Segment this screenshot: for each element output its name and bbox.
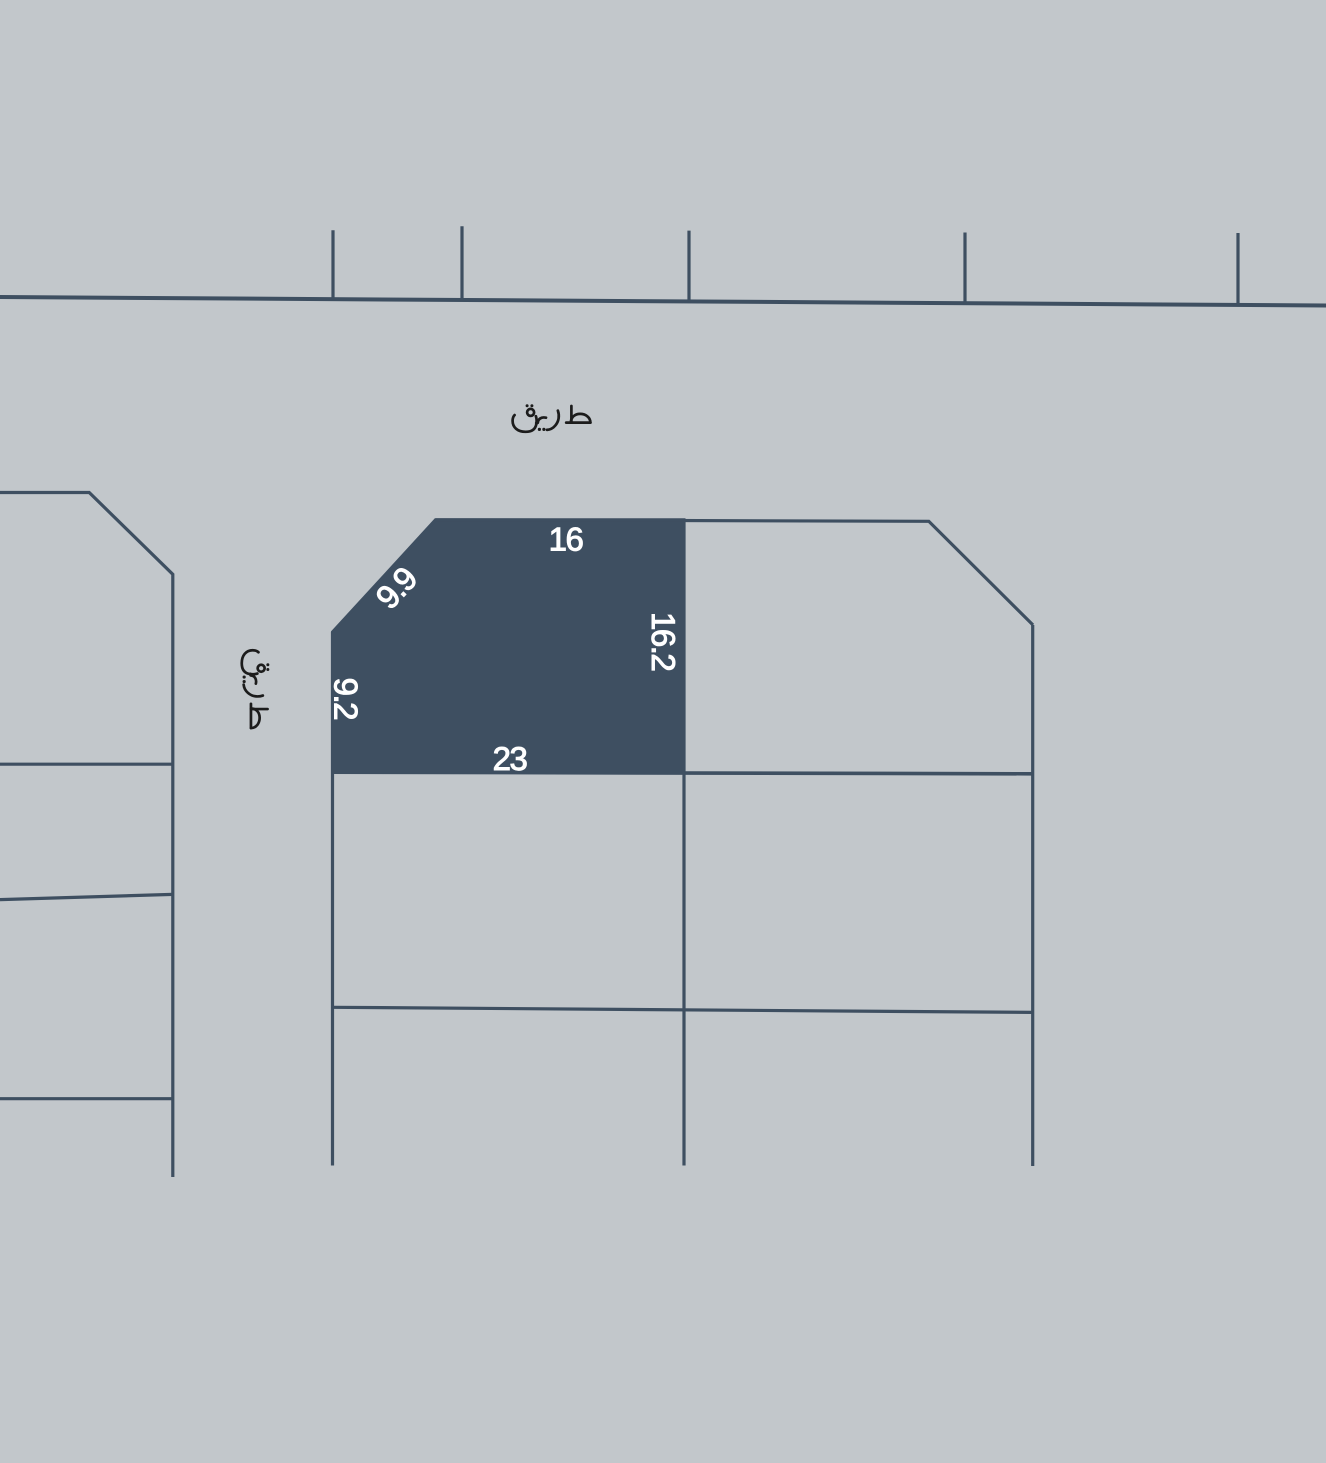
svg-text:16: 16 [549,520,583,557]
svg-text:16.2: 16.2 [645,612,682,670]
svg-text:9.2: 9.2 [327,678,364,720]
svg-text:23: 23 [493,740,527,777]
